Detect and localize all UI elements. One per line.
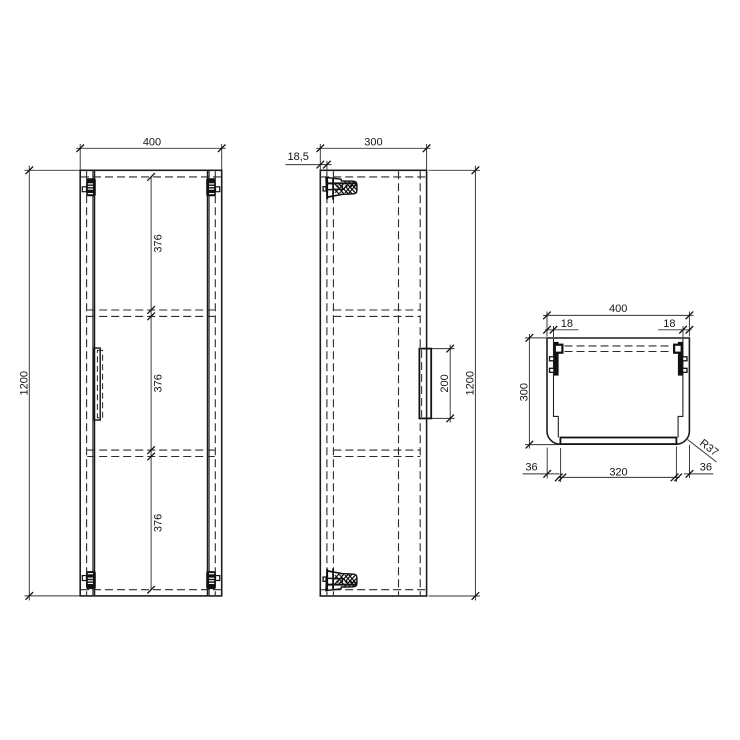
svg-text:376: 376 bbox=[152, 234, 164, 252]
svg-text:36: 36 bbox=[700, 462, 712, 474]
svg-text:18,5: 18,5 bbox=[287, 151, 308, 163]
svg-text:300: 300 bbox=[364, 137, 382, 149]
svg-text:300: 300 bbox=[519, 383, 531, 401]
svg-text:36: 36 bbox=[525, 462, 537, 474]
svg-text:200: 200 bbox=[439, 374, 451, 392]
svg-text:1200: 1200 bbox=[464, 371, 476, 395]
svg-text:320: 320 bbox=[609, 466, 627, 478]
svg-text:400: 400 bbox=[609, 303, 627, 315]
svg-text:400: 400 bbox=[143, 137, 161, 149]
svg-text:1200: 1200 bbox=[18, 371, 30, 395]
svg-text:18: 18 bbox=[663, 318, 675, 330]
svg-text:376: 376 bbox=[152, 514, 164, 532]
svg-text:376: 376 bbox=[152, 374, 164, 392]
svg-text:18: 18 bbox=[561, 318, 573, 330]
